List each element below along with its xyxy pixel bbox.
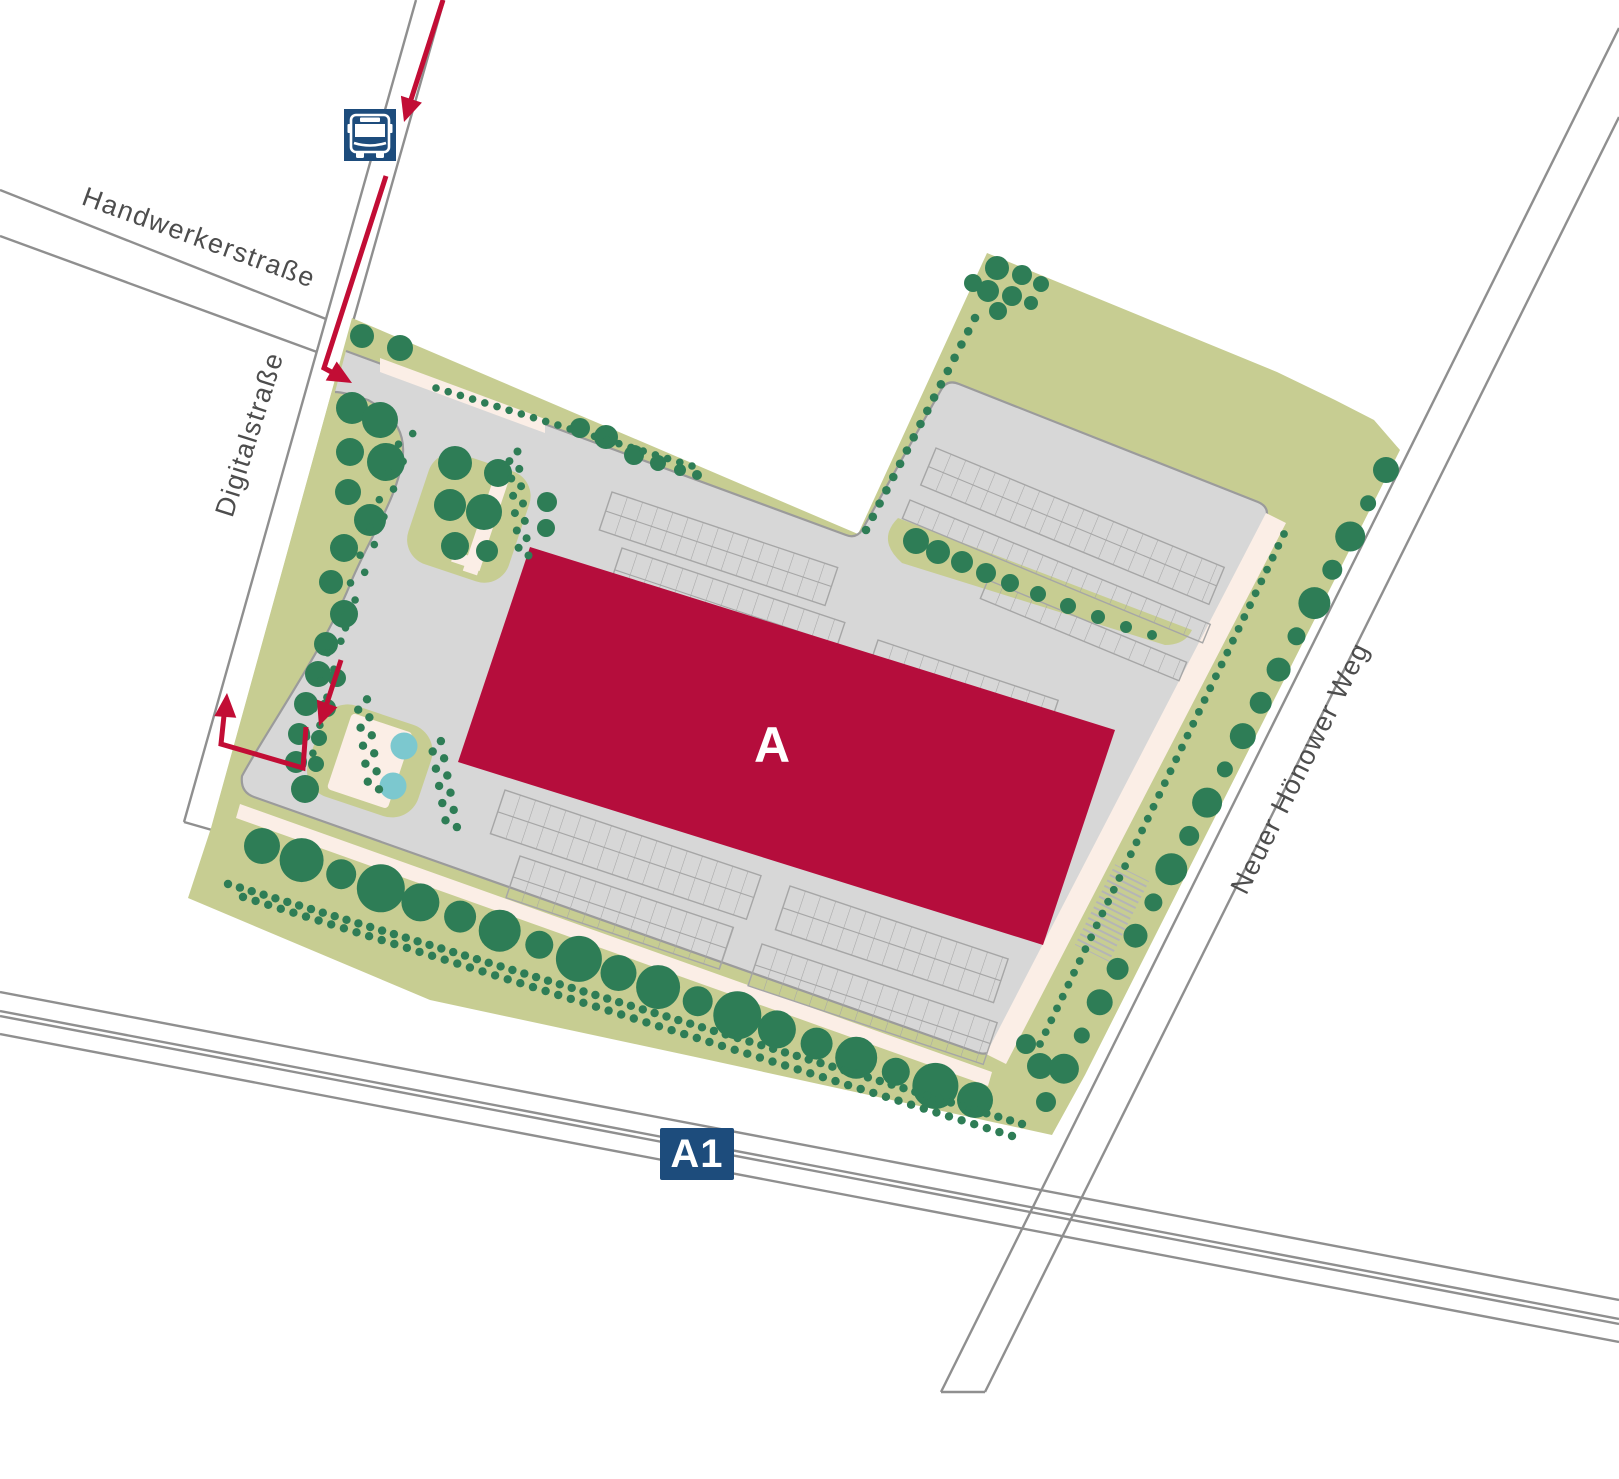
tree [554,421,562,429]
tree [1373,457,1399,483]
tree [481,399,489,407]
tree [1110,886,1118,894]
tree [639,1005,647,1013]
tree [425,941,433,949]
tree [319,909,327,917]
tree [308,756,324,772]
tree [1167,767,1175,775]
tree [541,987,549,995]
tree [476,540,498,562]
tree [1269,554,1277,562]
tree [523,534,531,542]
tree [1138,827,1146,835]
tree [1201,696,1209,704]
tree [428,952,436,960]
tree [244,828,280,864]
tree [1104,898,1112,906]
tree [441,532,469,560]
tree [507,475,515,483]
tree [441,956,449,964]
tree [664,455,672,463]
tree [280,838,324,882]
tree [525,931,553,959]
tree [311,730,327,746]
tree [390,930,398,938]
tree [366,524,374,532]
tree [1263,566,1271,574]
tree [957,340,966,349]
tree [692,470,702,480]
tree [239,893,247,901]
tree [376,496,384,504]
tree [591,433,599,441]
tree [627,1002,635,1010]
tree [1189,720,1197,728]
tree [446,789,454,797]
tree [591,991,599,999]
tree [1184,732,1192,740]
tree [337,637,345,645]
tree [674,1016,682,1024]
tree [335,479,361,505]
tree [1127,850,1135,858]
tree [469,395,477,403]
tree [662,1012,670,1020]
tree [970,1106,978,1114]
tree [357,864,405,912]
tree [1288,627,1306,645]
tree [781,1048,789,1056]
tree [840,1066,848,1074]
tree [768,1057,776,1065]
tree [444,901,476,933]
tree [1027,1053,1053,1079]
tree [1155,853,1187,885]
tree [793,1052,801,1060]
tree [1012,265,1032,285]
tree [957,1116,965,1124]
tree [592,1003,600,1011]
tree [525,552,533,560]
tree [362,402,398,438]
tree [1121,862,1129,870]
tree [365,932,373,940]
tree [509,492,517,500]
tree [359,742,367,750]
tree [903,528,929,554]
tree [361,569,369,577]
tree [1147,630,1157,640]
tree [889,473,898,482]
tree [466,963,474,971]
tree [517,482,525,490]
tree [453,959,461,967]
tree [639,447,647,455]
tree [356,724,364,732]
tree [1087,933,1095,941]
tree [615,998,623,1006]
tree [385,468,393,476]
tree [378,926,386,934]
tree [326,859,356,889]
tree [259,891,267,899]
site-map-svg: A A1 Handwerkerstraße Digitalstraße Neue… [0,0,1619,1479]
tree [604,1006,612,1014]
tree [627,444,635,452]
tree [1257,578,1265,586]
tree [930,393,939,402]
tree [516,979,524,987]
tree [511,509,519,517]
tree [781,1061,789,1069]
tree [390,485,398,493]
tree [1252,589,1260,597]
tree [816,1059,824,1067]
tree [1246,601,1254,609]
tree [676,459,684,467]
tree [857,1085,865,1093]
tree [478,967,486,975]
tree [354,504,386,536]
tree [330,534,358,562]
tree [450,806,458,814]
tree [1218,661,1226,669]
tree [347,579,355,587]
tree [862,526,871,535]
tree [579,999,587,1007]
tree [970,1120,978,1128]
tree [434,489,466,521]
tree [1322,560,1342,580]
tree [705,1038,713,1046]
tree [367,443,405,481]
tree [291,775,319,803]
tree [1133,839,1141,847]
tree [976,563,996,583]
pond [391,733,418,760]
tree [440,754,448,762]
tree [1223,649,1231,657]
tree [819,1073,827,1081]
tree [831,1077,839,1085]
site-plan-map: A A1 Handwerkerstraße Digitalstraße Neue… [0,0,1619,1479]
tree [264,901,272,909]
tree [1120,621,1132,633]
tree [923,1091,931,1099]
tree [513,527,521,535]
tree [896,460,905,469]
tree [554,991,562,999]
tree [479,910,521,952]
tree [401,883,439,921]
tree [307,905,315,913]
tree [1002,286,1022,306]
tree [1049,1054,1079,1084]
tree [331,912,339,920]
tree [683,986,713,1016]
tree [399,458,407,466]
tree [932,1108,940,1116]
tree [1074,1028,1090,1044]
tree [1087,989,1113,1015]
tree [415,948,423,956]
tree [1274,542,1282,550]
tree [1144,893,1162,911]
tree [1006,1116,1014,1124]
tree [650,1009,658,1017]
tree [923,407,932,416]
tree [375,785,383,793]
road-digitalstrasse-edge [345,0,444,350]
tree [713,991,761,1039]
tree [556,936,602,982]
tree [926,540,950,564]
tree [567,995,575,1003]
tree [437,737,445,745]
tree [1076,957,1084,965]
tree [615,440,623,448]
tree [387,335,413,361]
tree [330,600,358,628]
tree [1059,993,1067,1001]
road-digitalstrasse-end [184,822,212,830]
tree [805,1055,813,1063]
tree [515,465,523,473]
tree [1172,755,1180,763]
tree [1036,1040,1044,1048]
tree [710,1027,718,1035]
tree [352,928,360,936]
tree [983,1124,991,1132]
tree [698,1023,706,1031]
tree [437,944,445,952]
tree [1155,791,1163,799]
highway-a1-label: A1 [670,1132,723,1176]
tree [537,492,557,512]
tree [964,327,973,336]
tree [372,767,380,775]
tree [556,980,564,988]
tree [310,705,318,713]
tree [302,912,310,920]
tree [951,551,973,573]
tree [995,1128,1003,1136]
tree [1235,625,1243,633]
tree [354,706,362,714]
tree [899,1084,907,1092]
tree [882,486,891,495]
tree [438,799,446,807]
tree [1033,276,1049,292]
tree [1124,924,1148,948]
tree [603,436,611,444]
tree [994,1113,1002,1121]
tree [1018,1120,1026,1128]
tree [317,677,325,685]
tree [429,747,437,755]
tree [441,816,449,824]
tree [354,919,362,927]
tree [722,1030,730,1038]
tree [1206,684,1214,692]
tree [959,1102,967,1110]
tree [1195,708,1203,716]
tree [395,440,403,448]
tree [733,1034,741,1042]
tree [1250,692,1272,714]
tree [532,973,540,981]
tree [466,494,502,530]
tree [982,1109,990,1117]
tree [579,429,587,437]
tree [518,410,526,418]
tree [911,1088,919,1096]
tree [894,1097,902,1105]
tree [364,778,372,786]
tree [327,920,335,928]
tree [1070,969,1078,977]
tree [319,570,343,594]
tree [686,1020,694,1028]
tree [435,782,443,790]
tree [542,418,550,426]
tree [248,887,256,895]
tree [380,513,388,521]
tree [852,1070,860,1078]
tree [882,1093,890,1101]
tree [351,596,359,604]
tree [1229,637,1237,645]
tree [950,354,959,363]
tree [493,403,501,411]
tree [642,1018,650,1026]
tree [617,1010,625,1018]
tree [828,1063,836,1071]
tree [1082,945,1090,953]
tree [350,324,374,348]
tree [1179,826,1199,846]
tree [1091,610,1105,624]
tree [636,965,680,1009]
tree [920,1104,928,1112]
tree [1217,761,1233,777]
tree [328,635,336,643]
tree [876,1077,884,1085]
tree [887,1080,895,1088]
tree [1042,1028,1050,1036]
tree [806,1069,814,1077]
tree [971,314,980,323]
tree [336,438,364,466]
tree [370,749,378,757]
tree [1212,672,1220,680]
tree [1008,1132,1016,1140]
tree [529,983,537,991]
tree [521,517,529,525]
tree [1150,803,1158,811]
tree [680,1030,688,1038]
building-a-label: A [754,717,790,773]
tree [731,1046,739,1054]
tree [461,951,469,959]
tree [224,880,232,888]
tree [1161,779,1169,787]
tree [283,898,291,906]
tree [413,937,421,945]
tree [909,433,918,442]
tree [508,966,516,974]
tree [365,713,373,721]
tree [1030,586,1046,602]
tree [1280,530,1288,538]
tree [757,1041,765,1049]
tree [655,1022,663,1030]
tree [935,1095,943,1103]
tree [530,414,538,422]
tree [363,695,371,703]
tree [1360,495,1376,511]
tree [769,1045,777,1053]
tree [745,1037,753,1045]
tree [1107,958,1129,980]
tree [1024,296,1038,310]
tree [449,948,457,956]
tree [1267,658,1291,682]
tree [603,994,611,1002]
tree [869,1089,877,1097]
tree [1240,613,1248,621]
tree [882,1058,910,1086]
tree [1335,522,1365,552]
tree [630,1014,638,1022]
tree [515,544,523,552]
tree [945,1112,953,1120]
tree [432,384,440,392]
tree [1001,574,1019,592]
tree [505,457,513,465]
tree [652,451,660,459]
tree [356,551,364,559]
tree [504,975,512,983]
tree [1047,1016,1055,1024]
tree [1192,788,1222,818]
tree [371,541,379,549]
tree [324,649,332,657]
tree [342,624,350,632]
tree [1144,815,1152,823]
tree [443,771,451,779]
tree [989,302,1007,320]
tree [491,971,499,979]
tree [1230,723,1256,749]
tree [337,607,345,615]
tree [378,936,386,944]
tree [756,1053,764,1061]
tree [340,924,348,932]
tree [251,897,259,905]
tree [944,367,953,376]
tree [937,380,946,389]
tree [514,448,522,456]
tree [444,388,452,396]
tree [366,923,374,931]
tree [544,977,552,985]
tree [505,407,513,415]
tree [432,765,440,773]
tree [361,760,369,768]
tree [794,1065,802,1073]
tree [485,959,493,967]
